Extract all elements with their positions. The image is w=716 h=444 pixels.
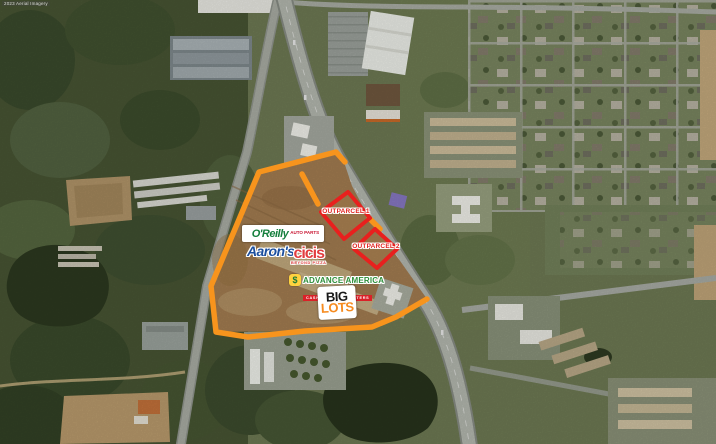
dollar-sign-icon: $ [289, 274, 301, 286]
tenant-logo-oreilly: O'Reilly AUTO PARTS [242, 225, 324, 242]
advance-america-wordmark: ADVANCE AMERICA [303, 276, 384, 285]
outparcel-1-label: OUTPARCEL 1 [318, 208, 374, 215]
imagery-attribution: 2023 Aerial Imagery [2, 1, 50, 6]
aerial-basemap [0, 0, 716, 444]
outparcel-2-label: OUTPARCEL 2 [348, 243, 404, 250]
cicis-wordmark: cicis [291, 246, 326, 262]
cicis-subtext: BEYOND PIZZA [291, 261, 326, 265]
aerial-site-map: 2023 Aerial Imagery OUTPARCEL 1 OUTPARCE… [0, 0, 716, 444]
tenant-logo-aarons: Aaron's [247, 243, 294, 259]
oreilly-subtext: AUTO PARTS [290, 231, 314, 236]
tenant-logo-big-lots: BIG LOTS [317, 285, 357, 320]
tenant-logo-cicis: cicis BEYOND PIZZA [291, 246, 326, 265]
big-lots-wordmark-bottom: LOTS [321, 301, 354, 314]
oreilly-wordmark: O'Reilly [252, 228, 289, 240]
